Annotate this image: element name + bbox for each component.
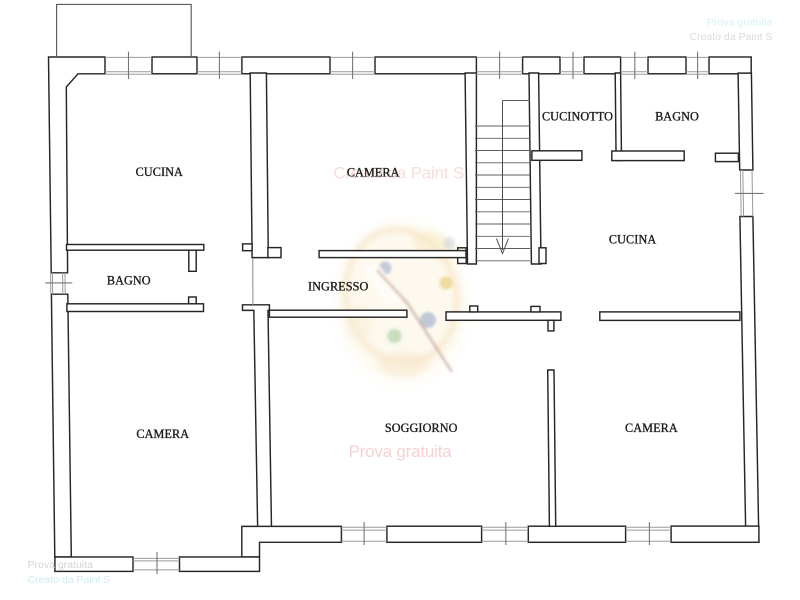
svg-text:Prova gratuita: Prova gratuita [707,17,773,29]
svg-text:Prova gratuita: Prova gratuita [28,559,94,571]
svg-text:CAMERA: CAMERA [347,165,400,179]
svg-text:BAGNO: BAGNO [107,274,151,288]
svg-text:Creato da Paint S: Creato da Paint S [690,31,773,43]
svg-text:Prova gratuita: Prova gratuita [348,442,452,461]
svg-text:CUCINA: CUCINA [609,233,656,247]
svg-text:CUCINOTTO: CUCINOTTO [542,109,613,123]
svg-text:CAMERA: CAMERA [136,427,189,441]
svg-text:INGRESSO: INGRESSO [308,280,368,294]
svg-text:BAGNO: BAGNO [655,109,699,123]
svg-text:SOGGIORNO: SOGGIORNO [385,421,458,435]
svg-text:Creato da Paint S: Creato da Paint S [28,574,111,586]
svg-text:CUCINA: CUCINA [136,165,183,179]
svg-text:CAMERA: CAMERA [625,421,678,435]
